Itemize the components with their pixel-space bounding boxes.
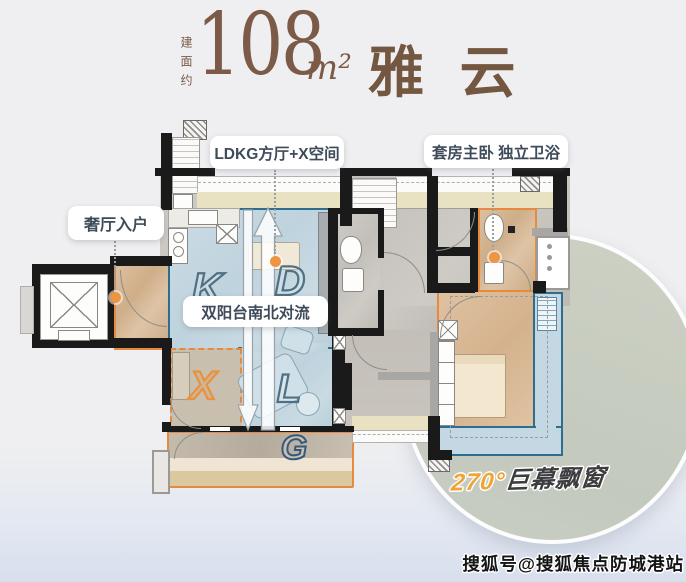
wall-segment bbox=[378, 208, 384, 258]
room-letter-living: L bbox=[277, 369, 301, 409]
elevator-x-symbol bbox=[50, 282, 98, 328]
callout-hall: LDKG方厅+X空间 bbox=[210, 136, 344, 169]
room-letter-flex: X bbox=[190, 366, 217, 406]
cabinet-x bbox=[333, 334, 346, 350]
plan-name: 雅 云 bbox=[368, 28, 526, 109]
wall-segment bbox=[110, 256, 172, 266]
room-letter-balcony: G bbox=[281, 431, 307, 465]
wall-segment bbox=[162, 348, 171, 405]
bed bbox=[448, 354, 506, 418]
wall-segment bbox=[378, 372, 432, 380]
title-area-prefix: 建面约 bbox=[178, 36, 195, 106]
shaft-marker bbox=[508, 226, 515, 233]
wall-segment bbox=[161, 133, 172, 210]
south-window-sill bbox=[352, 430, 440, 443]
callout-entry: 奢厅入户 bbox=[68, 206, 164, 240]
bay-degree-text: 270° bbox=[450, 468, 507, 498]
marker-dot-entry bbox=[110, 292, 121, 303]
wardrobe-column bbox=[438, 340, 455, 426]
marker-dot-masterbath bbox=[489, 252, 500, 263]
louver-panel bbox=[172, 137, 200, 194]
wall-segment bbox=[533, 281, 546, 293]
sliding-door-gap bbox=[210, 427, 230, 431]
toilet-master bbox=[484, 214, 504, 242]
bay-label-text: 巨幕飘窗 bbox=[504, 457, 608, 495]
kitchen-sink bbox=[188, 210, 218, 225]
elevator-door-sill bbox=[58, 330, 90, 341]
wall-segment bbox=[378, 290, 384, 334]
leader-line bbox=[492, 169, 494, 251]
ac-hatch-topright bbox=[520, 176, 540, 192]
marker-dot-dining bbox=[270, 256, 281, 267]
south-planter bbox=[352, 416, 438, 431]
wall-segment bbox=[340, 176, 352, 226]
elevator-left-stub bbox=[20, 286, 34, 334]
north-planter bbox=[395, 192, 555, 209]
wall-segment bbox=[108, 338, 172, 348]
sink bbox=[342, 268, 364, 292]
leader-line bbox=[114, 241, 116, 291]
callout-suite: 套房主卧 独立卫浴 bbox=[424, 135, 568, 168]
title-area-number: 108 bbox=[196, 0, 323, 90]
wall-segment bbox=[428, 450, 452, 460]
wall-segment bbox=[340, 168, 432, 176]
wall-segment bbox=[553, 176, 567, 232]
watermark: 搜狐号@搜狐焦点防城港站 bbox=[462, 551, 684, 576]
desk bbox=[172, 352, 190, 400]
wall-segment bbox=[427, 283, 475, 293]
floorplan-page: K D L X G 建面约 108 m² 雅 云 LDKG方厅+X空间 套房主卧… bbox=[0, 0, 686, 582]
leader-line bbox=[274, 170, 276, 254]
wall-segment bbox=[512, 168, 570, 176]
title-area-unit: m² bbox=[306, 48, 352, 88]
cabinet-x bbox=[333, 408, 346, 424]
pantry-x bbox=[216, 224, 238, 244]
balcony-step bbox=[152, 450, 170, 494]
wall-segment bbox=[328, 208, 338, 334]
wall-segment bbox=[345, 363, 352, 410]
wall-segment bbox=[328, 208, 384, 214]
callout-airflow: 双阳台南北对流 bbox=[183, 296, 328, 327]
toilet bbox=[340, 236, 362, 264]
bay-window-annotation: 270° 巨幕飘窗 bbox=[450, 457, 608, 497]
